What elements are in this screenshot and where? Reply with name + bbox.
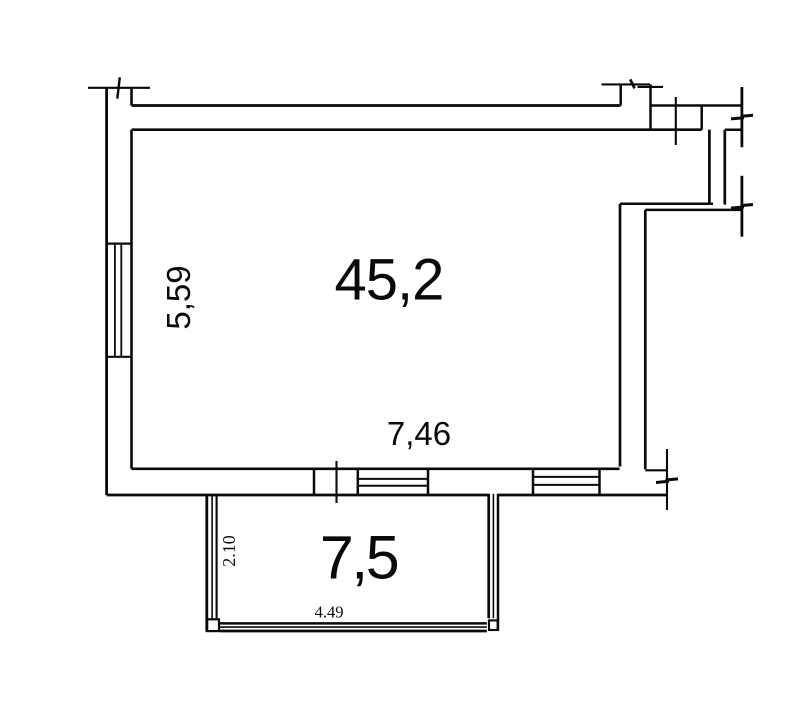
svg-text:45,2: 45,2 [335, 248, 444, 313]
svg-text:7,46: 7,46 [387, 415, 451, 452]
svg-text:2.10: 2.10 [219, 535, 239, 567]
svg-text:7,5: 7,5 [320, 524, 398, 592]
svg-text:5,59: 5,59 [160, 265, 197, 329]
svg-text:4.49: 4.49 [315, 603, 344, 622]
